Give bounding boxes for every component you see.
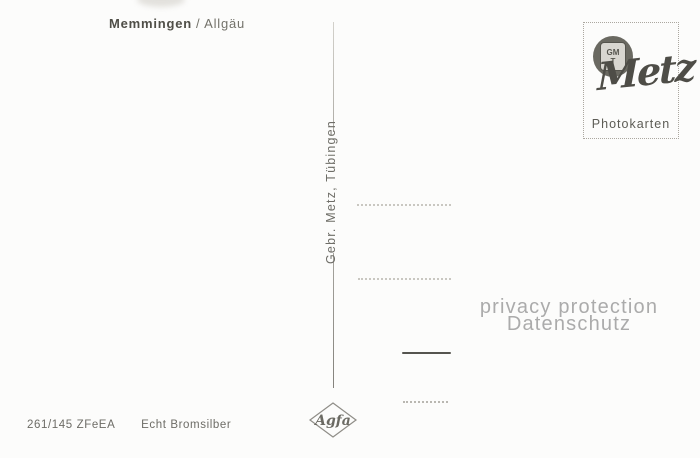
agfa-logo: Agfa: [308, 401, 358, 439]
address-line-3: [402, 352, 451, 354]
publisher-imprint: Gebr. Metz, Tübingen: [324, 120, 338, 264]
postcard-back: Memmingen/ Allgäu Gebr. Metz, Tübingen G…: [0, 0, 700, 458]
address-line-4: [403, 401, 448, 403]
privacy-watermark: privacy protection Datenschutz: [480, 299, 658, 333]
caption-title: Memmingen/ Allgäu: [109, 16, 245, 31]
address-line-1: [357, 204, 451, 206]
divider-line-bottom: [333, 253, 334, 388]
stamp-caption: Photokarten: [584, 117, 678, 131]
address-line-2: [358, 278, 451, 280]
caption-title-region: / Allgäu: [196, 16, 245, 31]
privacy-watermark-line2: Datenschutz: [480, 316, 658, 333]
print-code: 261/145 ZFeEA: [27, 419, 115, 431]
divider-line-top: [333, 22, 334, 132]
caption-title-place: Memmingen: [109, 16, 192, 31]
stamp-box: GM T Metz Photokarten: [583, 22, 679, 139]
print-info: 261/145 ZFeEA Echt Bromsilber: [27, 419, 231, 431]
metz-logo: Metz: [597, 44, 694, 99]
agfa-logo-text: Agfa: [313, 413, 351, 429]
paper-type: Echt Bromsilber: [141, 419, 231, 431]
scan-smudge: [137, 0, 185, 7]
